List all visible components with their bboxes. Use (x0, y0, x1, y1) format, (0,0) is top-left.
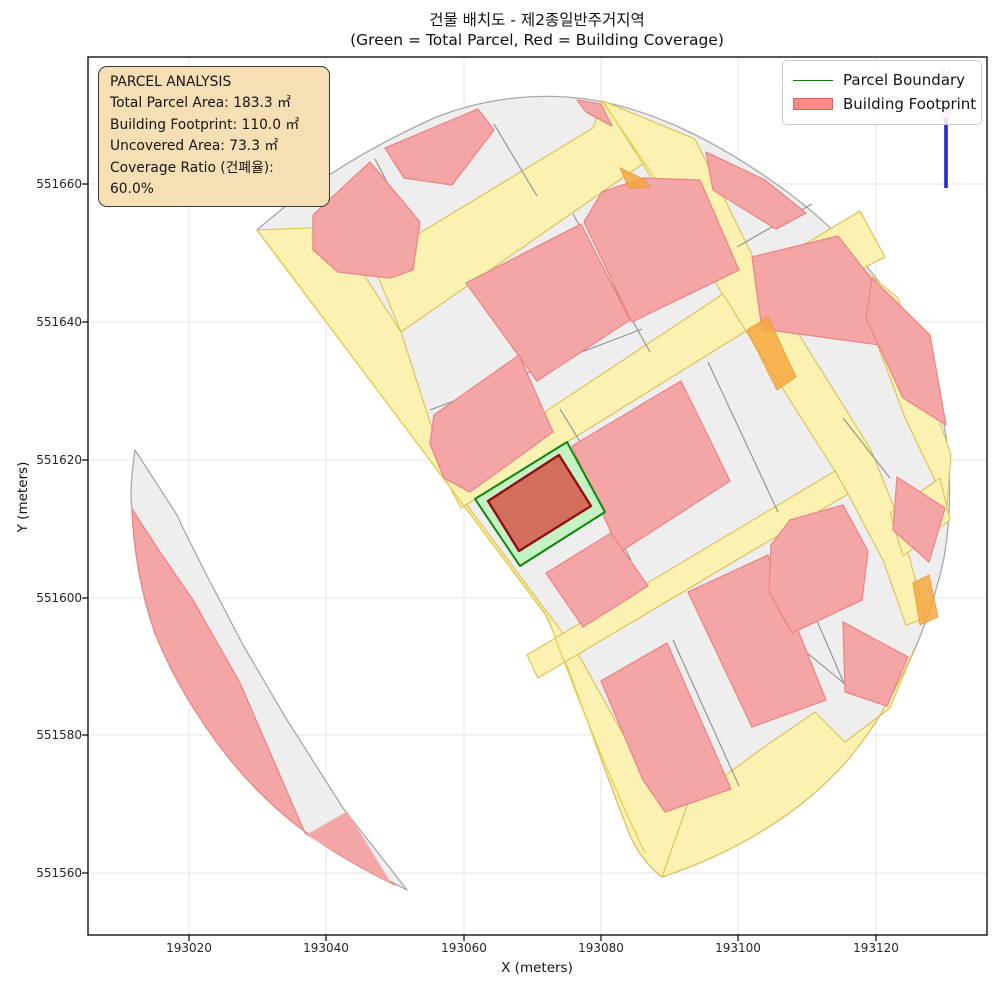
y-tick-label: 551560 (10, 866, 82, 880)
legend-item-building-footprint: Building Footprint (793, 92, 969, 116)
y-tick-label: 551620 (10, 453, 82, 467)
y-tick-label: 551660 (10, 177, 82, 191)
analysis-line: Coverage Ratio (건폐율): 60.0% (110, 158, 318, 201)
legend-box: Parcel Boundary Building Footprint (782, 60, 982, 125)
legend-label: Parcel Boundary (843, 71, 965, 89)
green-line-swatch-icon (793, 80, 833, 81)
x-tick-label: 193060 (429, 941, 499, 955)
x-axis-label: X (meters) (501, 960, 573, 976)
y-tick-label: 551580 (10, 728, 82, 742)
x-tick-label: 193020 (154, 941, 224, 955)
y-tick-label: 551600 (10, 591, 82, 605)
x-tick-label: 193120 (841, 941, 911, 955)
analysis-line: Uncovered Area: 73.3 ㎡ (110, 136, 318, 157)
analysis-title: PARCEL ANALYSIS (110, 72, 318, 93)
legend-item-parcel-boundary: Parcel Boundary (793, 68, 969, 92)
analysis-line: Total Parcel Area: 183.3 ㎡ (110, 93, 318, 114)
plot-title: 건물 배치도 - 제2종일반주거지역 (429, 8, 645, 30)
red-patch-swatch-icon (793, 98, 833, 110)
x-tick-label: 193100 (703, 941, 773, 955)
analysis-line: Building Footprint: 110.0 ㎡ (110, 115, 318, 136)
x-tick-label: 193080 (566, 941, 636, 955)
y-tick-label: 551640 (10, 315, 82, 329)
legend-label: Building Footprint (843, 95, 976, 113)
plot-subtitle: (Green = Total Parcel, Red = Building Co… (350, 31, 724, 49)
parcel-analysis-box: PARCEL ANALYSIS Total Parcel Area: 183.3… (98, 66, 330, 207)
figure-canvas: 건물 배치도 - 제2종일반주거지역 (Green = Total Parcel… (0, 0, 1001, 990)
x-tick-label: 193040 (291, 941, 361, 955)
